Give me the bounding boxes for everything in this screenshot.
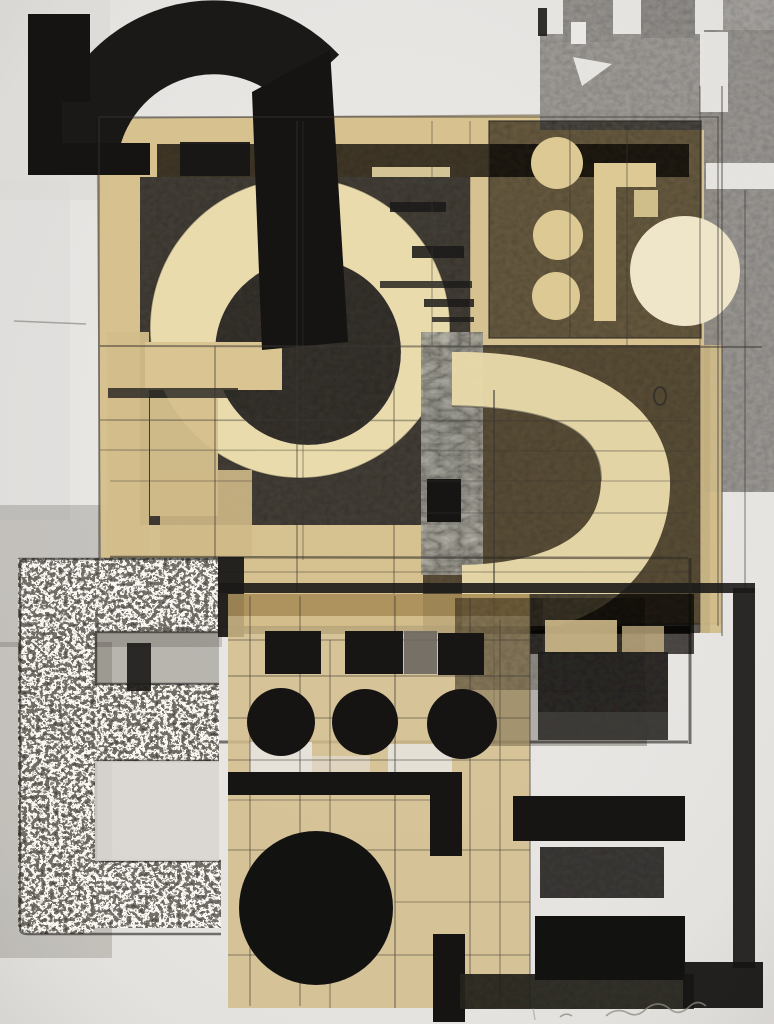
- grid-h-4: [100, 450, 690, 451]
- texture-bar-top-a: [563, 0, 613, 42]
- black-circle-2: [332, 689, 398, 755]
- stack-bar-2: [513, 796, 685, 841]
- grid-h-2: [100, 346, 762, 347]
- texture-bar-top-c: [723, 0, 774, 34]
- tan-strip-col-c: [160, 470, 252, 556]
- grid-h-3: [100, 420, 690, 421]
- black-square-1: [265, 631, 321, 674]
- white-notch-bar: [571, 22, 586, 44]
- black-bar-horizontal: [228, 772, 460, 795]
- tan-circle-middle: [533, 210, 583, 260]
- texture-band-topright: [540, 34, 704, 130]
- texture-bar-top-b: [641, 0, 695, 38]
- white-slot-right: [700, 32, 728, 112]
- gray-square-small: [404, 631, 437, 674]
- stack-rect-3: [540, 847, 664, 898]
- ink-dash-5: [432, 317, 474, 322]
- frame-bottom-l: [683, 962, 763, 1008]
- cream-chip-1: [545, 620, 617, 652]
- frame-right-bar: [733, 588, 755, 968]
- black-tick-topright: [538, 8, 547, 36]
- ink-dash-2: [412, 246, 464, 258]
- cream-circle-large: [630, 216, 740, 326]
- window-light: [95, 761, 219, 861]
- white-patch-3: [310, 756, 370, 774]
- tan-strip-col-a: [107, 332, 149, 556]
- speckle-top-arm: [18, 558, 219, 632]
- black-circle-3: [427, 689, 497, 759]
- artwork-photo: [0, 0, 774, 1024]
- black-bar-leg: [430, 772, 462, 856]
- big-black-circle: [239, 831, 393, 985]
- tan-circle-bottom: [532, 272, 580, 320]
- tan-circle-top: [531, 137, 583, 189]
- abstract-artwork-canvas: [0, 0, 774, 1024]
- dark-underline: [108, 388, 238, 398]
- tan-l-arm: [594, 163, 656, 187]
- speckle-mid-arm: [18, 684, 219, 761]
- window-gray: [95, 632, 219, 684]
- black-strip-segment: [180, 142, 250, 176]
- tan-strip-bar: [145, 342, 282, 390]
- black-square-3: [438, 633, 484, 675]
- black-circle-1: [247, 688, 315, 756]
- stack-bar-4: [535, 916, 685, 980]
- speckle-bottom-arm: [95, 861, 221, 928]
- black-square-2: [345, 631, 403, 674]
- cream-chip-2: [622, 626, 664, 654]
- ink-dash-3: [380, 281, 472, 288]
- tan-l-foot: [634, 190, 658, 217]
- white-band-right: [706, 163, 774, 189]
- black-rect-mid: [427, 479, 461, 522]
- stack-rect-1-light: [538, 712, 668, 740]
- black-chip-left: [127, 643, 151, 691]
- ink-dash-1: [390, 202, 446, 212]
